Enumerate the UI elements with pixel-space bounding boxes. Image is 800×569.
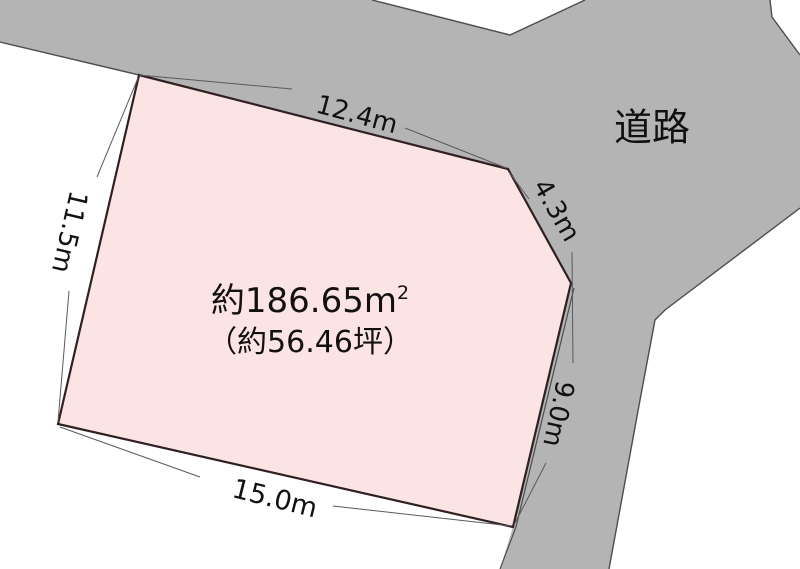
parcel-area-tsubo: （約56.46坪） xyxy=(207,325,413,360)
parcel-area-sqm-superscript: 2 xyxy=(397,282,409,304)
parcel-area-sqm: 約186.65m2 xyxy=(211,281,409,321)
parcel-area-sqm-value: 約186.65m xyxy=(211,281,397,321)
land-plot-svg: 12.4m 4.3m 9.0m 15.0m 11.5m 道路 約186.65m2… xyxy=(0,0,800,569)
road-label: 道路 xyxy=(614,105,690,149)
land-plot-diagram: 12.4m 4.3m 9.0m 15.0m 11.5m 道路 約186.65m2… xyxy=(0,0,800,569)
